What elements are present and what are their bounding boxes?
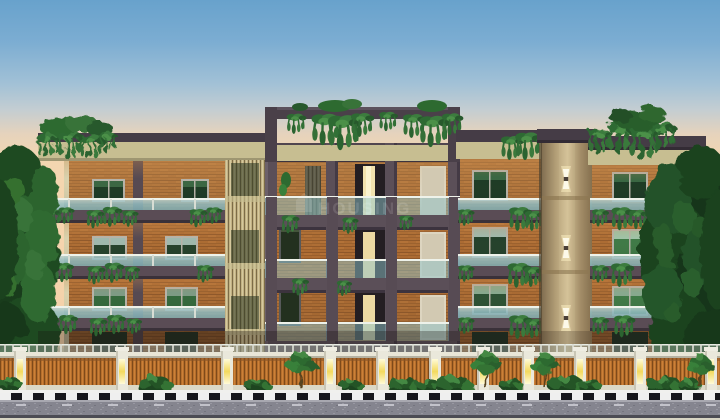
- svg-text:HOUSING: HOUSING: [318, 199, 411, 218]
